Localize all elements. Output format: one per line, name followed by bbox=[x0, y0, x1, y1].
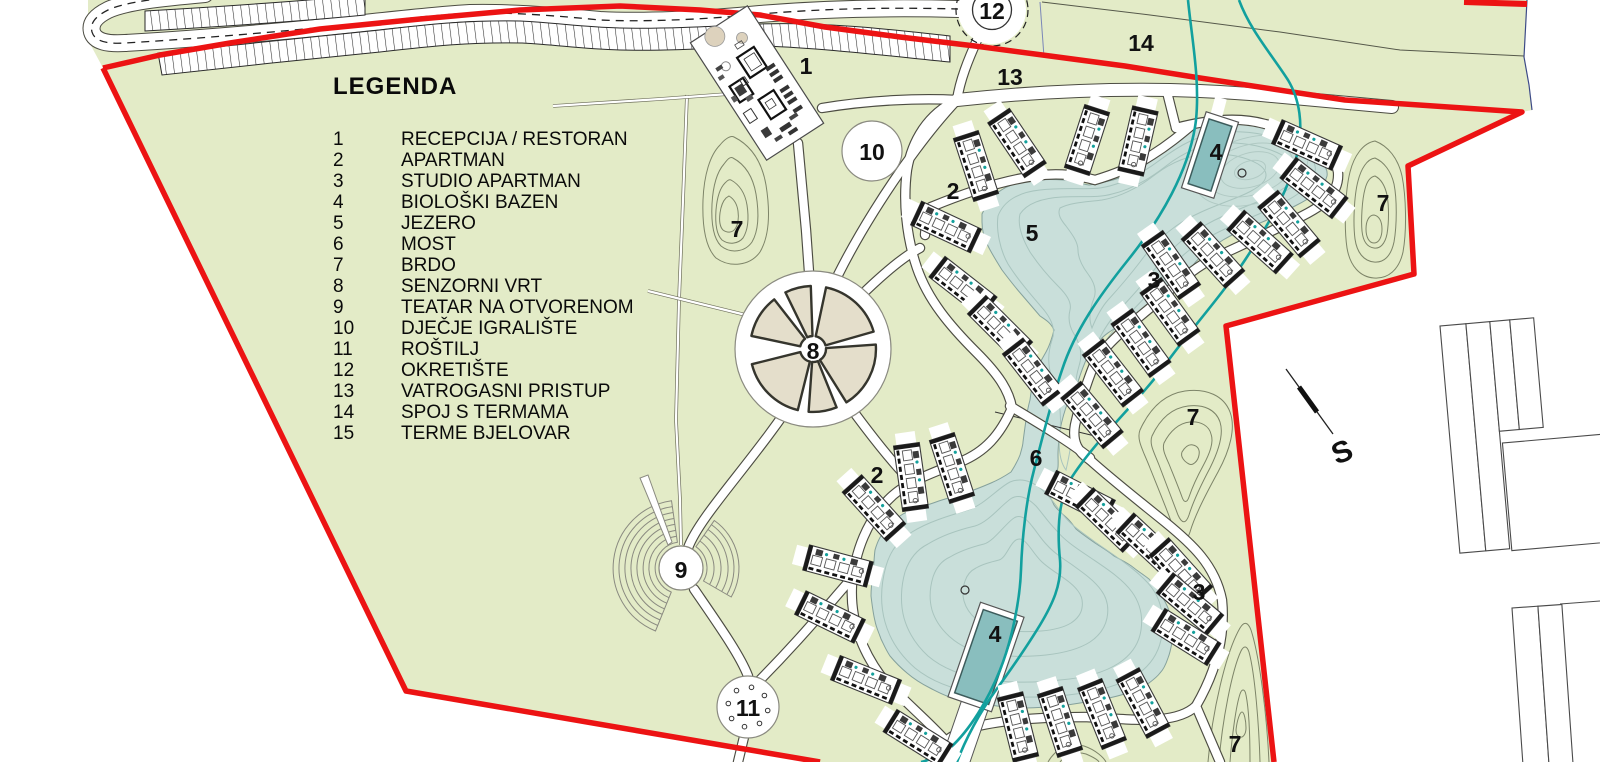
svg-text:APARTMAN: APARTMAN bbox=[401, 150, 505, 171]
svg-text:VATROGASNI PRISTUP: VATROGASNI PRISTUP bbox=[401, 381, 610, 402]
svg-text:1: 1 bbox=[333, 129, 344, 150]
svg-text:BIOLOŠKI BAZEN: BIOLOŠKI BAZEN bbox=[401, 191, 558, 213]
svg-text:STUDIO APARTMAN: STUDIO APARTMAN bbox=[401, 171, 581, 192]
svg-text:OKRETIŠTE: OKRETIŠTE bbox=[401, 359, 509, 381]
svg-text:14: 14 bbox=[1128, 30, 1154, 56]
svg-text:9: 9 bbox=[675, 557, 688, 583]
svg-text:2: 2 bbox=[947, 178, 960, 204]
svg-text:JEZERO: JEZERO bbox=[401, 213, 476, 234]
svg-text:2: 2 bbox=[871, 462, 884, 488]
svg-text:4: 4 bbox=[333, 192, 344, 213]
svg-text:14: 14 bbox=[333, 402, 355, 423]
svg-text:8: 8 bbox=[333, 276, 344, 297]
svg-text:9: 9 bbox=[333, 297, 344, 318]
svg-text:3: 3 bbox=[1193, 579, 1206, 605]
svg-text:15: 15 bbox=[333, 423, 354, 444]
svg-text:7: 7 bbox=[333, 255, 344, 276]
svg-text:13: 13 bbox=[333, 381, 354, 402]
svg-text:3: 3 bbox=[333, 171, 344, 192]
svg-text:11: 11 bbox=[333, 339, 353, 360]
svg-text:LEGENDA: LEGENDA bbox=[333, 73, 457, 100]
svg-text:6: 6 bbox=[1030, 445, 1043, 471]
svg-text:BRDO: BRDO bbox=[401, 255, 456, 276]
svg-text:MOST: MOST bbox=[401, 234, 456, 255]
svg-text:5: 5 bbox=[333, 213, 344, 234]
svg-text:4: 4 bbox=[989, 621, 1002, 647]
svg-text:10: 10 bbox=[333, 318, 354, 339]
svg-text:7: 7 bbox=[731, 216, 744, 242]
svg-text:10: 10 bbox=[859, 139, 885, 165]
svg-text:8: 8 bbox=[807, 338, 820, 364]
svg-text:2: 2 bbox=[333, 150, 344, 171]
svg-text:1: 1 bbox=[800, 53, 813, 79]
svg-text:TERME BJELOVAR: TERME BJELOVAR bbox=[401, 423, 571, 444]
svg-text:6: 6 bbox=[333, 234, 344, 255]
svg-text:4: 4 bbox=[1210, 139, 1223, 165]
svg-text:DJEČJE IGRALIŠTE: DJEČJE IGRALIŠTE bbox=[401, 317, 577, 339]
svg-text:RECEPCIJA / RESTORAN: RECEPCIJA / RESTORAN bbox=[401, 129, 628, 150]
svg-text:TEATAR NA OTVORENOM: TEATAR NA OTVORENOM bbox=[401, 297, 634, 318]
svg-text:12: 12 bbox=[979, 0, 1005, 24]
svg-text:11: 11 bbox=[736, 695, 761, 721]
svg-text:SENZORNI VRT: SENZORNI VRT bbox=[401, 276, 543, 297]
svg-text:7: 7 bbox=[1377, 190, 1390, 216]
svg-text:13: 13 bbox=[997, 64, 1023, 90]
svg-text:5: 5 bbox=[1026, 220, 1039, 246]
svg-text:7: 7 bbox=[1187, 404, 1200, 430]
svg-text:ROŠTILJ: ROŠTILJ bbox=[401, 338, 479, 360]
svg-text:S: S bbox=[1327, 433, 1358, 471]
svg-text:SPOJ S TERMAMA: SPOJ S TERMAMA bbox=[401, 402, 569, 423]
svg-text:12: 12 bbox=[333, 360, 354, 381]
svg-text:3: 3 bbox=[1148, 267, 1161, 293]
svg-text:7: 7 bbox=[1229, 731, 1242, 757]
